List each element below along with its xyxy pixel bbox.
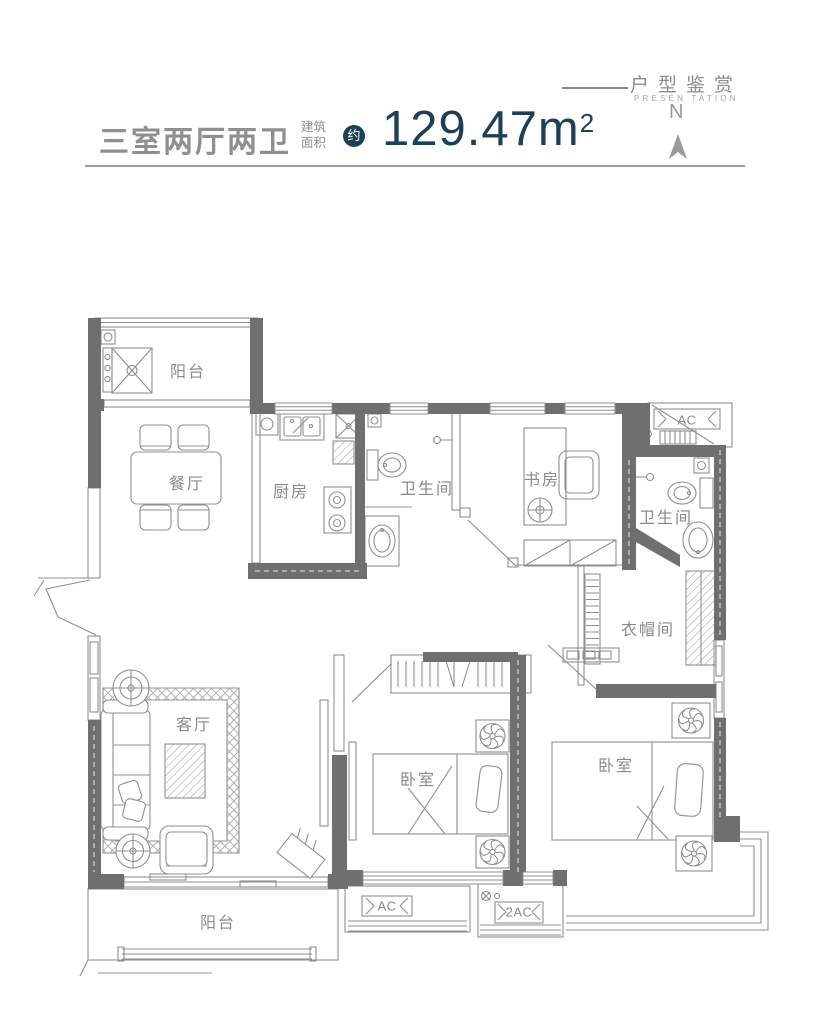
- title-underline: [85, 165, 745, 167]
- brand-title: 户型鉴赏: [630, 70, 742, 97]
- area-label: 建筑 面积: [301, 120, 326, 151]
- area-label-line1: 建筑: [301, 120, 326, 136]
- approx-badge: 约: [343, 125, 365, 147]
- layout-name: 三室两厅两卫: [99, 117, 291, 161]
- area-exponent: 2: [580, 108, 595, 138]
- room-label-bedroom-right: 卧室: [598, 752, 634, 776]
- ac2-platform-label: 2AC: [506, 905, 533, 920]
- room-label-kitchen: 厨房: [273, 478, 309, 502]
- compass-arrow-icon: [669, 134, 687, 159]
- room-label-bedroom-middle: 卧室: [400, 766, 436, 790]
- room-label-bathroom-2: 卫生间: [639, 504, 693, 528]
- room-label-cloakroom: 衣帽间: [621, 616, 675, 640]
- compass-north-letter: N: [669, 101, 683, 124]
- room-label-study: 书房: [524, 466, 560, 490]
- area-label-line2: 面积: [301, 136, 326, 152]
- floorplan-page: 户型鉴赏 PRESEN TATION 三室两厅两卫 建筑 面积 约 129.47…: [0, 0, 816, 1014]
- brand-subtitle: PRESEN TATION: [634, 94, 739, 103]
- room-label-dining: 餐厅: [169, 470, 205, 494]
- room-label-bathroom-1: 卫生间: [400, 475, 454, 499]
- area-number: 129.47m: [382, 102, 580, 156]
- ac-platform-label-bottom: AC: [377, 899, 396, 914]
- area-value: 129.47m2: [382, 101, 595, 157]
- room-label-balcony-top: 阳台: [170, 358, 206, 382]
- ac-platform-label-top: AC: [677, 413, 696, 428]
- room-label-living: 客厅: [176, 711, 212, 735]
- room-label-balcony-bottom: 阳台: [200, 909, 236, 933]
- brand-divider-line: [562, 87, 628, 89]
